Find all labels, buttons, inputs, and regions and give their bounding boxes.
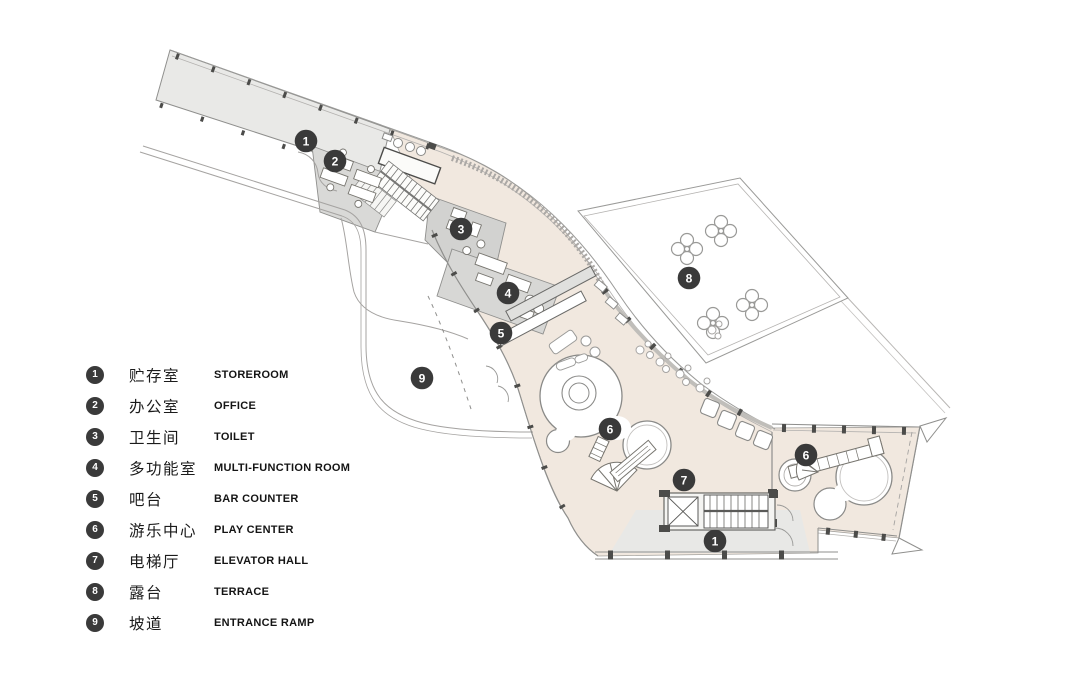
svg-text:3: 3 xyxy=(458,223,465,237)
svg-text:2: 2 xyxy=(332,155,339,169)
staircase-icon xyxy=(704,495,768,528)
wall-flare xyxy=(892,538,922,554)
legend-label-en: OFFICE xyxy=(214,400,256,412)
round-table-icon xyxy=(590,347,600,357)
svg-text:5: 5 xyxy=(498,327,505,341)
plan-marker-office: 2 xyxy=(324,150,347,173)
svg-text:9: 9 xyxy=(419,372,426,386)
svg-text:4: 4 xyxy=(505,287,512,301)
legend: 1贮存室STOREROOM2办公室OFFICE3卫生间TOILET4多功能室MU… xyxy=(86,359,229,638)
legend-badge: 2 xyxy=(86,397,104,415)
plan-marker-multi-function-room: 4 xyxy=(497,282,520,305)
plan-marker-entrance-ramp: 9 xyxy=(411,367,434,390)
road-curb xyxy=(375,232,428,244)
svg-text:1: 1 xyxy=(303,135,310,149)
legend-item-multi-function-room: 4多功能室MULTI-FUNCTION ROOM xyxy=(86,452,229,483)
legend-item-terrace: 8露台TERRACE xyxy=(86,576,229,607)
overhang-dashed-line xyxy=(428,296,472,412)
svg-text:8: 8 xyxy=(686,272,693,286)
plan-marker-terrace: 8 xyxy=(678,267,701,290)
plan-marker-storeroom: 1 xyxy=(704,530,727,553)
legend-label-en: ELEVATOR HALL xyxy=(214,555,308,567)
legend-badge: 6 xyxy=(86,521,104,539)
plan-marker-play-center: 6 xyxy=(795,444,818,467)
legend-badge: 3 xyxy=(86,428,104,446)
legend-label-en: PLAY CENTER xyxy=(214,524,294,536)
floor-plan-canvas: 12345967168 1贮存室STOREROOM2办公室OFFICE3卫生间T… xyxy=(0,0,1080,682)
legend-item-elevator-hall: 7电梯厅ELEVATOR HALL xyxy=(86,545,229,576)
svg-text:6: 6 xyxy=(803,449,810,463)
legend-badge: 5 xyxy=(86,490,104,508)
legend-label-en: TERRACE xyxy=(214,586,269,598)
legend-item-office: 2办公室OFFICE xyxy=(86,390,229,421)
round-table-icon xyxy=(417,147,426,156)
legend-badge: 7 xyxy=(86,552,104,570)
svg-text:1: 1 xyxy=(712,535,719,549)
legend-label-en: ENTRANCE RAMP xyxy=(214,617,314,629)
legend-label-en: MULTI-FUNCTION ROOM xyxy=(214,462,350,474)
elevator-shaft-icon xyxy=(668,497,698,526)
round-table-icon xyxy=(581,336,591,346)
legend-item-bar-counter: 5吧台BAR COUNTER xyxy=(86,483,229,514)
road-curb xyxy=(140,152,342,216)
plan-marker-play-center: 6 xyxy=(599,418,622,441)
round-table-icon xyxy=(394,139,403,148)
legend-badge: 9 xyxy=(86,614,104,632)
legend-item-entrance-ramp: 9坡道ENTRANCE RAMP xyxy=(86,607,229,638)
plan-marker-elevator-hall: 7 xyxy=(673,469,696,492)
plan-marker-bar-counter: 5 xyxy=(490,322,513,345)
plan-marker-storeroom: 1 xyxy=(295,130,318,153)
round-table-icon xyxy=(406,143,415,152)
svg-text:7: 7 xyxy=(681,474,688,488)
legend-label-en: TOILET xyxy=(214,431,255,443)
legend-label-en: BAR COUNTER xyxy=(214,493,299,505)
legend-label-en: STOREROOM xyxy=(214,369,289,381)
svg-text:6: 6 xyxy=(607,423,614,437)
wall-flare xyxy=(920,418,946,442)
door-arc-icon xyxy=(486,366,498,383)
legend-item-toilet: 3卫生间TOILET xyxy=(86,421,229,452)
legend-item-play-center: 6游乐中心PLAY CENTER xyxy=(86,514,229,545)
legend-badge: 4 xyxy=(86,459,104,477)
door-arc-icon xyxy=(498,386,508,402)
site-boundary-line xyxy=(841,301,945,413)
site-boundary-line xyxy=(846,296,950,408)
legend-badge: 8 xyxy=(86,583,104,601)
plan-marker-toilet: 3 xyxy=(450,218,473,241)
legend-badge: 1 xyxy=(86,366,104,384)
legend-item-storeroom: 1贮存室STOREROOM xyxy=(86,359,229,390)
